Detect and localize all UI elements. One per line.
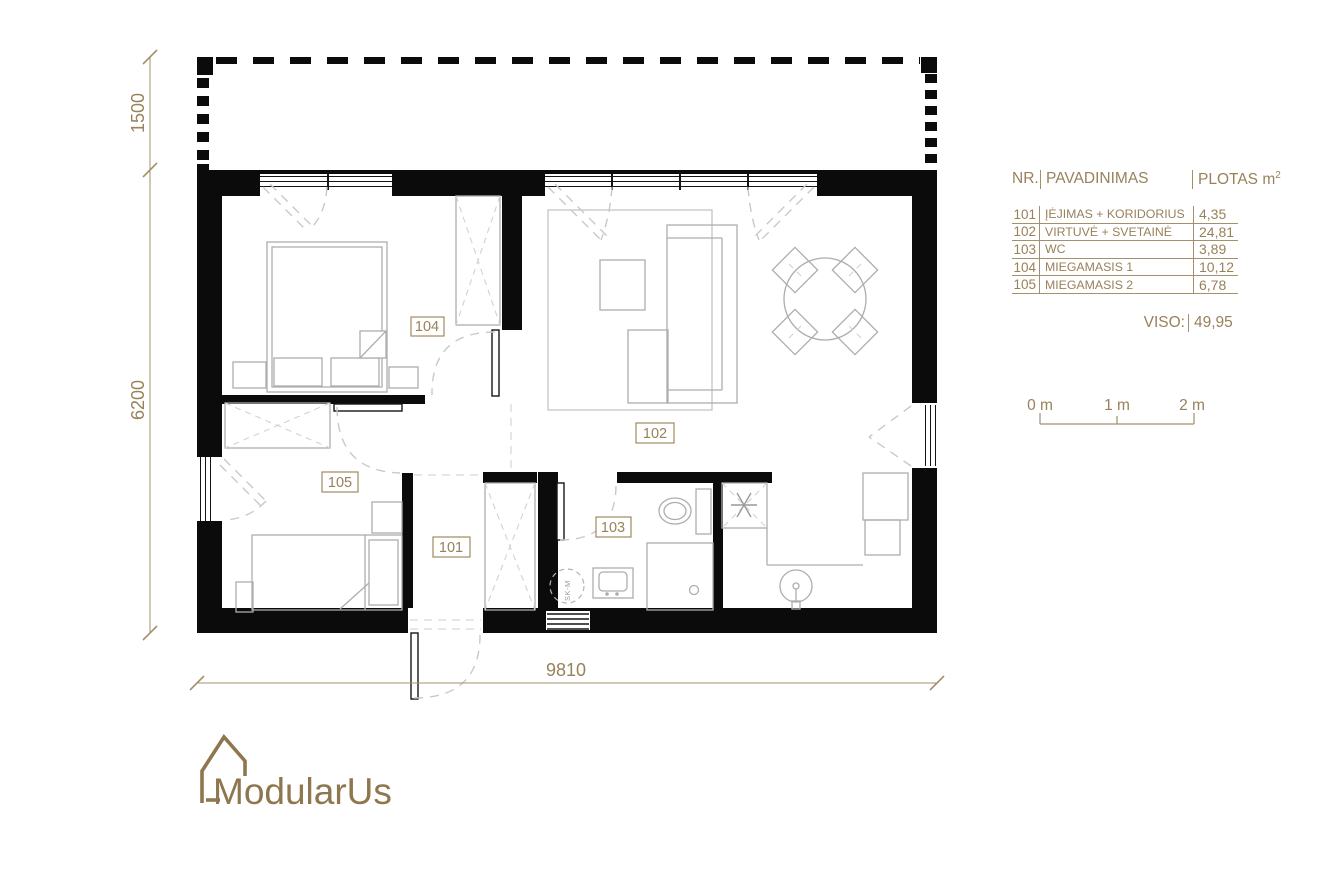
cell-area: 4,35 bbox=[1194, 206, 1238, 223]
logo: ModularUs bbox=[202, 737, 392, 812]
table-row: 104 MIEGAMASIS 1 10,12 bbox=[1012, 259, 1238, 277]
cell-area: 24,81 bbox=[1194, 224, 1238, 241]
table-row: 101 ĮĖJIMAS + KORIDORIUS 4,35 bbox=[1012, 206, 1238, 224]
cell-name: VIRTUVĖ + SVETAINĖ bbox=[1040, 224, 1194, 241]
room-label-103: 103 bbox=[596, 517, 631, 537]
svg-text:102: 102 bbox=[643, 426, 667, 442]
room-label-104: 104 bbox=[411, 317, 444, 336]
col-header-area: PLOTAS m2 bbox=[1193, 170, 1281, 189]
col-header-area-sup: 2 bbox=[1275, 170, 1281, 181]
table-row: 105 MIEGAMASIS 2 6,78 bbox=[1012, 276, 1238, 294]
col-header-nr: NR. bbox=[1012, 170, 1041, 189]
area-table-header: NR. PAVADINIMAS PLOTAS m2 bbox=[1012, 170, 1281, 191]
svg-text:104: 104 bbox=[415, 319, 439, 335]
total-value: 49,95 bbox=[1188, 314, 1238, 332]
kitchen-furniture bbox=[722, 473, 908, 609]
cell-name: MIEGAMASIS 2 bbox=[1040, 276, 1194, 293]
cell-nr: 103 bbox=[1012, 241, 1040, 258]
area-table-total: VISO: 49,95 bbox=[1012, 314, 1238, 332]
logo-text: ModularUs bbox=[213, 771, 392, 812]
svg-text:105: 105 bbox=[328, 475, 352, 491]
col-header-area-text: PLOTAS m bbox=[1198, 171, 1275, 188]
cell-area: 10,12 bbox=[1194, 259, 1238, 276]
svg-text:101: 101 bbox=[439, 540, 463, 556]
scale-bar: 0 m 1 m 2 m bbox=[1027, 397, 1205, 424]
dimension-house-depth: 6200 bbox=[128, 380, 148, 420]
dimension-lines: 1500 6200 9810 bbox=[128, 50, 944, 690]
cell-nr: 104 bbox=[1012, 259, 1040, 276]
cell-area: 6,78 bbox=[1194, 276, 1238, 293]
dimension-terrace-depth: 1500 bbox=[128, 93, 148, 133]
cell-name: WC bbox=[1040, 241, 1194, 258]
svg-text:103: 103 bbox=[601, 520, 625, 536]
scale-label-0m: 0 m bbox=[1027, 397, 1053, 414]
hallway-furniture bbox=[414, 404, 535, 610]
hob-asterisk-icon bbox=[731, 493, 757, 517]
cell-name: ĮĖJIMAS + KORIDORIUS bbox=[1040, 206, 1194, 223]
dimension-house-width: 9810 bbox=[546, 660, 586, 680]
col-header-name: PAVADINIMAS bbox=[1041, 170, 1193, 189]
table-row: 103 WC 3,89 bbox=[1012, 241, 1238, 259]
room-label-101: 101 bbox=[433, 537, 470, 557]
bedroom-104-furniture bbox=[233, 196, 500, 392]
bedroom-105-furniture bbox=[225, 403, 402, 612]
terrace bbox=[197, 57, 937, 170]
cell-area: 3,89 bbox=[1194, 241, 1238, 258]
scale-label-1m: 1 m bbox=[1104, 397, 1130, 414]
floor-plan-drawing: SK-M bbox=[0, 0, 1327, 871]
cell-name: MIEGAMASIS 1 bbox=[1040, 259, 1194, 276]
table-row: 102 VIRTUVĖ + SVETAINĖ 24,81 bbox=[1012, 224, 1238, 242]
room-label-105: 105 bbox=[322, 472, 358, 492]
area-table: NR. PAVADINIMAS PLOTAS m2 101 ĮĖJIMAS + … bbox=[1012, 170, 1281, 332]
wc-fixtures: SK-M bbox=[550, 489, 713, 610]
area-table-rows: 101 ĮĖJIMAS + KORIDORIUS 4,35 102 VIRTUV… bbox=[1012, 206, 1238, 294]
washer-label: SK-M bbox=[563, 580, 572, 601]
floor-plan-page: SK-M bbox=[0, 0, 1327, 871]
scale-label-2m: 2 m bbox=[1179, 397, 1205, 414]
interior-walls bbox=[222, 196, 772, 608]
cell-nr: 105 bbox=[1012, 276, 1040, 293]
cell-nr: 101 bbox=[1012, 206, 1040, 223]
living-room-furniture bbox=[548, 210, 878, 410]
cell-nr: 102 bbox=[1012, 224, 1040, 241]
room-label-102: 102 bbox=[636, 423, 674, 443]
total-label: VISO: bbox=[1144, 314, 1188, 332]
